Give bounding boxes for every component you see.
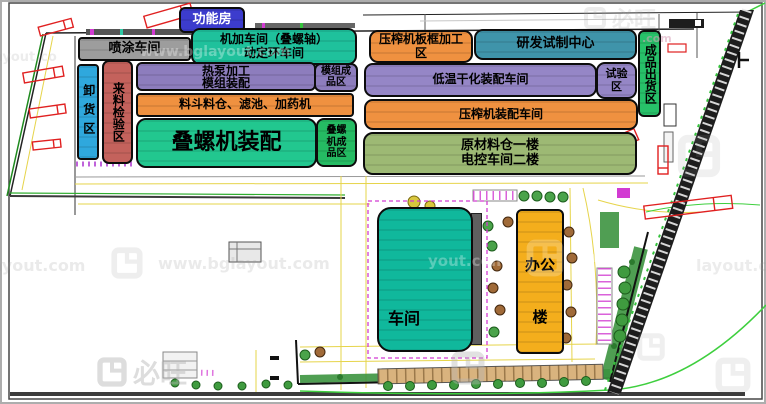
parking-row-bottom [378,364,603,384]
parking-strip-horizontal [473,190,517,201]
block-press-plate-frame-area: 压榨机板框加工 区 [369,30,473,63]
block-workshop: 车间 [377,207,473,352]
block-machining-workshop: 机加车间（叠螺轴） 动定环车间 [191,28,357,65]
block-raw-material-warehouse: 原材料仓一楼 电控车间二楼 [363,132,637,175]
block-heat-pump-module-assembly: 热泵加工 模组装配 [136,62,316,91]
block-screw-press-assembly: 叠螺机装配 [136,118,317,168]
block-office-building: 办公 楼 [516,209,564,354]
block-rd-trial-center: 研发试制中心 [474,29,637,60]
block-hopper-silo-filter-dosing: 料斗料仓、滤池、加药机 [136,93,354,117]
block-module-finished-area: 模组成 品区 [314,63,358,92]
block-finished-goods-shipping-area: 成品出货区 [638,30,661,117]
block-spray-workshop: 喷涂车间 [78,37,191,61]
block-incoming-inspection-area: 来料检验区 [102,60,133,164]
factory-layout-canvas: 功能房 喷涂车间 机加车间（叠螺轴） 动定环车间 压榨机板框加工 区 研发试制中… [0,0,766,404]
block-screw-press-finished-area: 叠螺 机成 品区 [316,118,357,167]
block-test-area: 试验 区 [596,62,637,99]
block-press-assembly-workshop: 压榨机装配车间 [364,99,638,130]
block-unloading-area: 卸货区 [77,64,99,160]
block-low-temp-drying-workshop: 低温干化装配车间 [364,63,597,97]
parking-strip-vertical [597,268,612,344]
